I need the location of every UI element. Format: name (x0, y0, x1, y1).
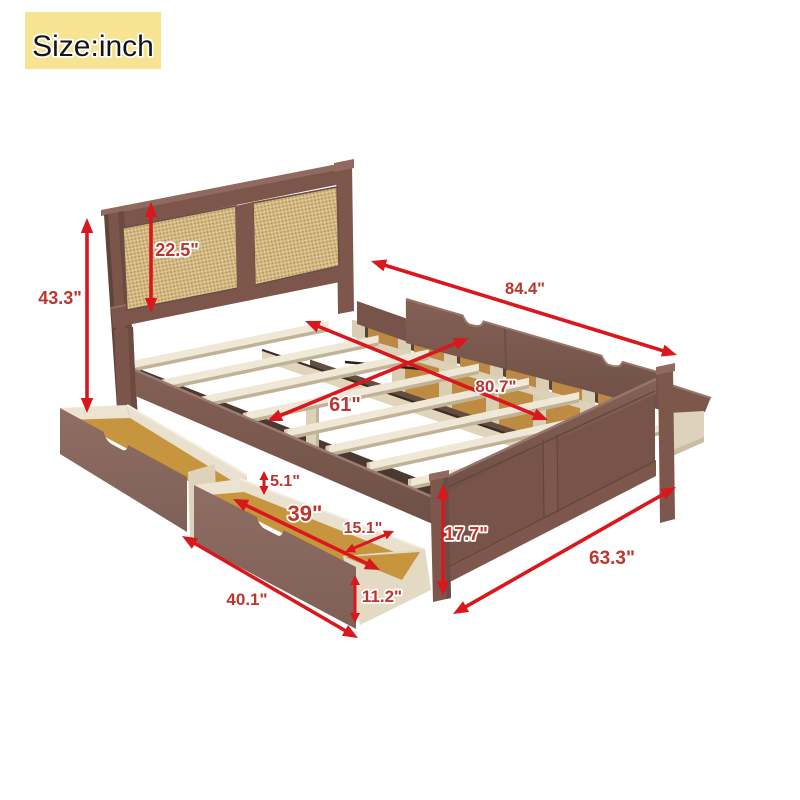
svg-text:80.7": 80.7" (475, 377, 516, 396)
svg-text:11.2": 11.2" (362, 587, 402, 606)
svg-text:22.5": 22.5" (155, 240, 199, 260)
svg-text:15.1": 15.1" (344, 520, 383, 537)
svg-text:40.1": 40.1" (226, 590, 267, 609)
svg-text:61": 61" (329, 394, 361, 416)
svg-text:43.3": 43.3" (38, 288, 82, 308)
svg-text:84.4": 84.4" (505, 280, 545, 298)
svg-text:39": 39" (288, 501, 323, 526)
svg-text:17.7": 17.7" (444, 524, 488, 544)
svg-text:Size:inch: Size:inch (32, 30, 154, 63)
svg-text:5.1": 5.1" (270, 473, 300, 490)
svg-text:63.3": 63.3" (589, 548, 635, 569)
